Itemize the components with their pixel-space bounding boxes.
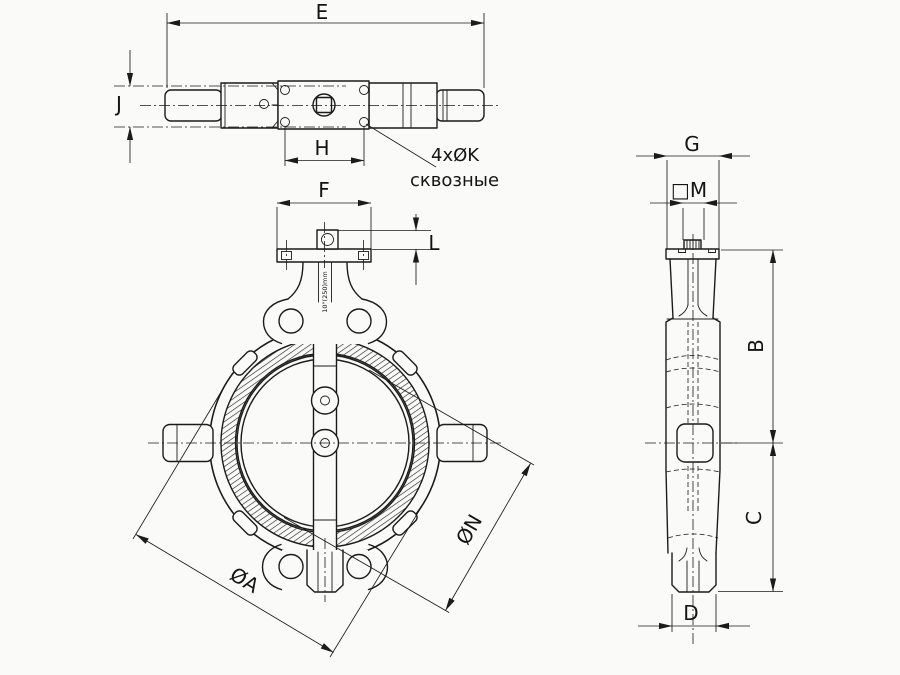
dim-label-j: J [114, 92, 122, 116]
top-view: E J H 4xØK сквозные [114, 0, 499, 191]
dim-label-f: F [318, 178, 330, 202]
stem-top [317, 230, 338, 249]
dim-label-e: E [316, 0, 329, 24]
front-view: 10"(250)mm F L ØA [133, 178, 534, 657]
neck-cast-marking: 10"(250)mm [321, 271, 329, 312]
dim-label-b: B [744, 339, 768, 353]
drawing-canvas: E J H 4xØK сквозные [0, 0, 900, 675]
dim-label-dia-n: ØN [451, 510, 487, 549]
dim-label-c: C [742, 511, 766, 525]
side-top-flange [666, 249, 719, 259]
dim-label-h: H [314, 136, 329, 160]
dim-label-g: G [684, 132, 700, 156]
disc-hub-upper [312, 387, 339, 414]
dim-label-l: L [428, 231, 440, 255]
holes-qty-label: 4xØK [431, 145, 480, 166]
holes-leader [366, 124, 436, 167]
dim-label-dia-a: ØA [226, 562, 264, 598]
valve-drawing: E J H 4xØK сквозные [0, 0, 900, 675]
actuator-pad [278, 81, 369, 129]
side-bottom-boss [672, 553, 716, 592]
dim-label-m: □M [671, 178, 707, 202]
side-view: G □M B C D [636, 132, 783, 645]
dim-label-d: D [683, 601, 698, 625]
holes-note-label: сквозные [410, 170, 499, 191]
